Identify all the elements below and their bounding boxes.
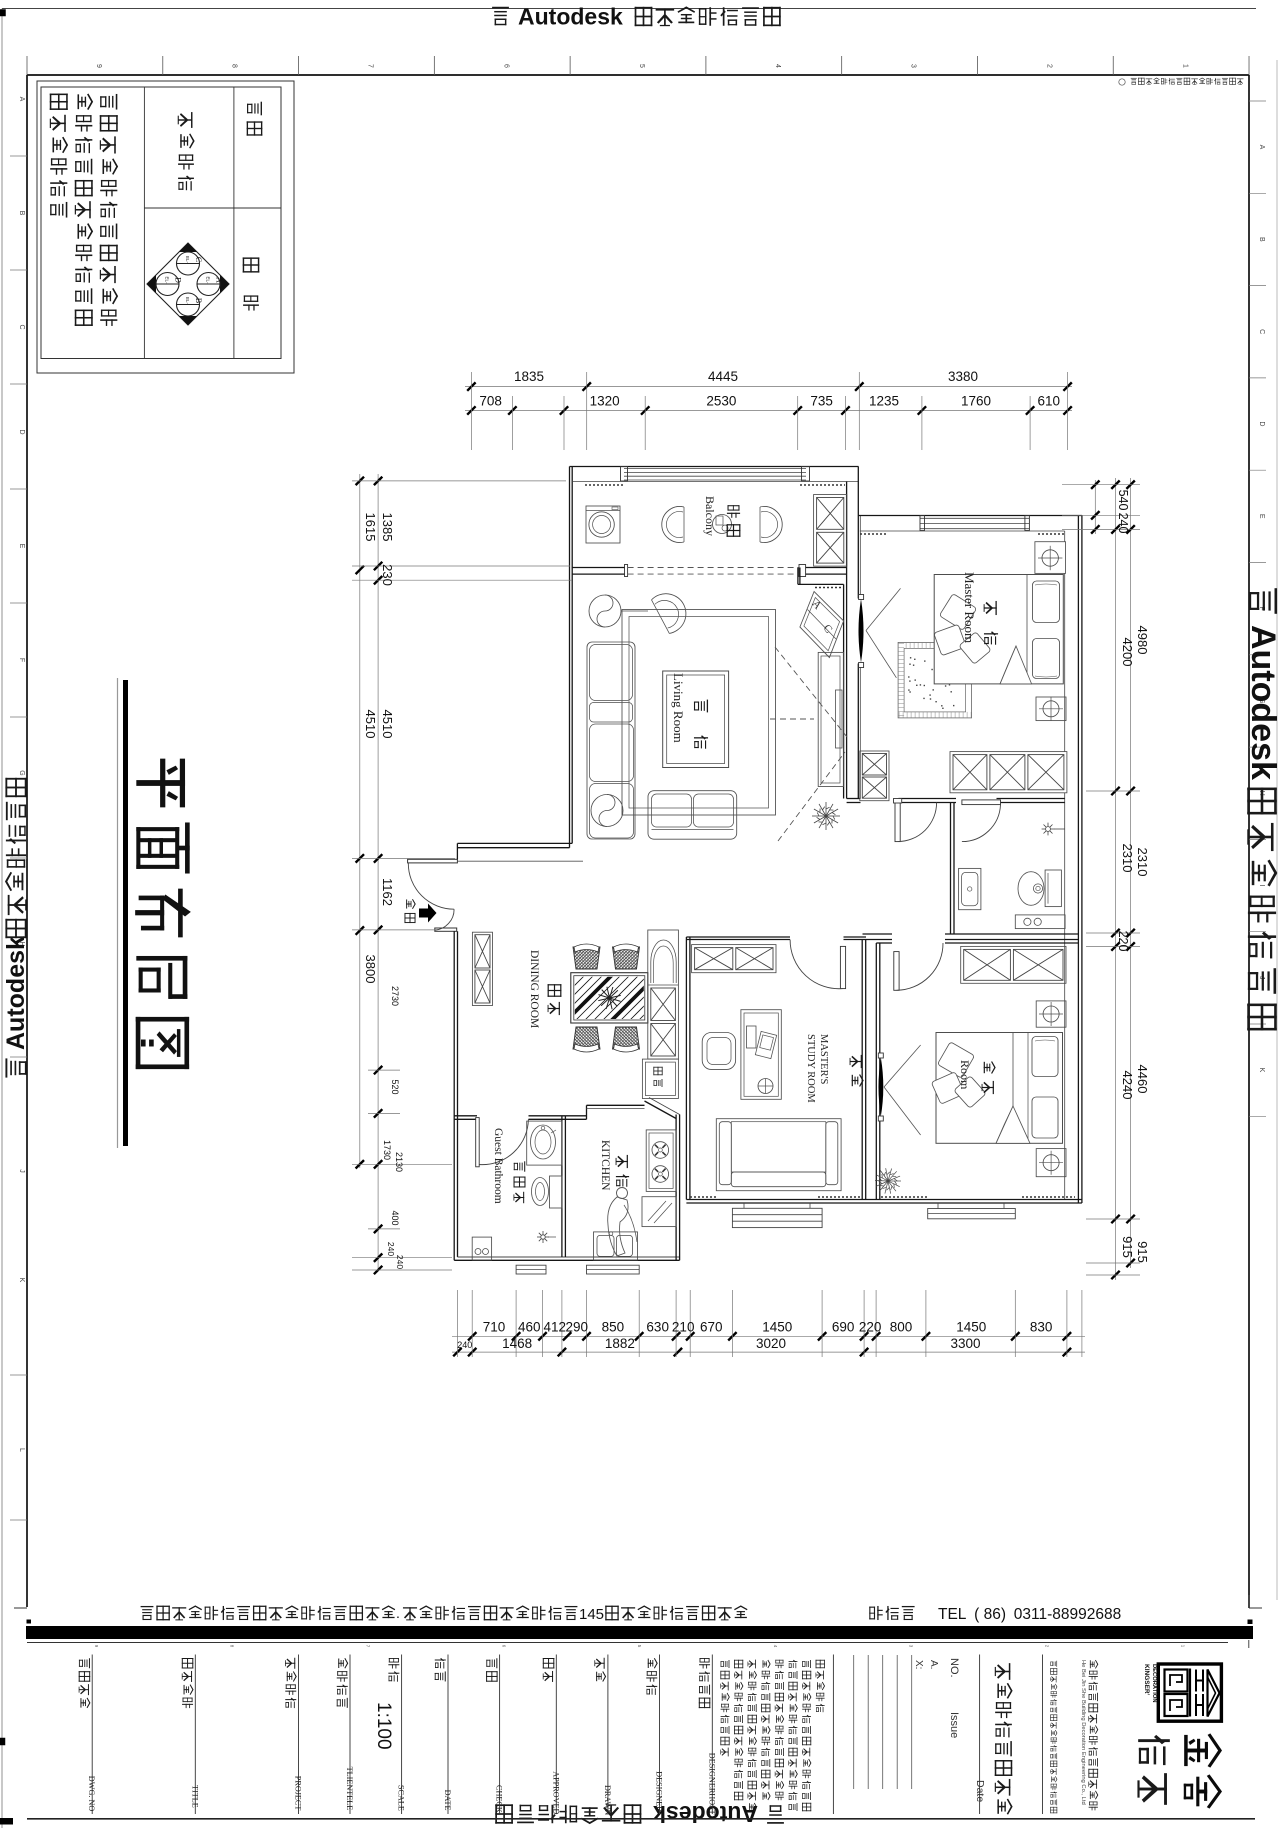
svg-text:Living Room: Living Room [671,673,686,743]
svg-text:915: 915 [1135,1241,1150,1263]
svg-text:C: C [18,324,25,329]
svg-text:1320: 1320 [590,394,620,409]
svg-text:MASTER'S: MASTER'S [818,1034,829,1084]
svg-text:K: K [18,1278,25,1283]
svg-text:4: 4 [774,64,781,68]
svg-text:Issue: Issue [948,1712,960,1738]
svg-text:DATE: DATE [443,1790,452,1811]
svg-text:4240: 4240 [1120,1071,1135,1100]
svg-text:Autodesk: Autodesk [518,4,623,30]
svg-text:400: 400 [390,1210,400,1225]
svg-text:8: 8 [231,64,238,68]
svg-text:PROJECT: PROJECT [294,1776,303,1811]
svg-text:240: 240 [457,1340,472,1350]
svg-text:Autodesk: Autodesk [2,936,30,1050]
svg-text:I: I [1258,884,1265,886]
svg-text:.: . [396,1605,400,1621]
svg-text:4460: 4460 [1135,1065,1150,1094]
svg-text:220: 220 [859,1320,882,1335]
svg-text:DRAWN: DRAWN [603,1785,612,1815]
svg-text:TLIENTELE: TLIENTELE [345,1767,354,1811]
svg-text:G: G [18,770,25,775]
svg-text:1760: 1760 [961,394,991,409]
svg-text:690: 690 [832,1320,855,1335]
svg-text:X:: X: [913,1660,924,1669]
svg-text:K: K [1258,1068,1265,1073]
svg-text:1162: 1162 [380,878,395,906]
svg-text:240: 240 [386,1242,396,1256]
svg-text:2310: 2310 [1135,848,1150,877]
svg-text:240: 240 [395,1255,405,1269]
svg-text:Balcony: Balcony [703,496,717,536]
svg-text:KITCHEN: KITCHEN [599,1140,611,1191]
svg-text:D: D [1258,421,1265,426]
svg-text:B: B [1258,237,1265,242]
svg-text:TEL ( 86) 0311-88992688: TEL ( 86) 0311-88992688 [938,1606,1121,1623]
svg-text:2130: 2130 [394,1152,404,1172]
svg-text:A.: A. [928,1660,939,1669]
svg-text:KINGSER’: KINGSER’ [1143,1664,1150,1696]
svg-text:2310: 2310 [1120,844,1135,873]
svg-text:C: C [1258,329,1265,334]
svg-text:610: 610 [1038,394,1061,409]
svg-text:800: 800 [890,1320,913,1335]
svg-text:C: C [194,257,203,262]
svg-text:EL-: EL- [185,297,190,305]
svg-text:710: 710 [483,1320,506,1335]
svg-text:412: 412 [544,1320,567,1335]
svg-text:9: 9 [95,64,102,68]
svg-text:4510: 4510 [380,710,395,739]
svg-text:Guest Bathroom: Guest Bathroom [492,1128,504,1204]
svg-text:2730: 2730 [390,986,400,1006]
svg-text:735: 735 [810,394,833,409]
svg-text:540: 540 [1116,490,1130,511]
svg-text:1:100: 1:100 [373,1702,394,1750]
svg-text:Date: Date [974,1780,986,1802]
svg-text:1385: 1385 [380,513,395,542]
svg-text:He Bei Jin She Building Decora: He Bei Jin She Building Decoration Engin… [1080,1660,1086,1805]
svg-text:1450: 1450 [762,1320,792,1335]
svg-text:7: 7 [367,64,374,68]
svg-text:EL-: EL- [165,276,170,284]
svg-text:EL-: EL- [185,256,190,264]
svg-text:2: 2 [1046,64,1053,68]
svg-text:1468: 1468 [502,1336,532,1351]
svg-text:210: 210 [672,1320,695,1335]
svg-text:850: 850 [602,1320,625,1335]
svg-text:Master Room: Master Room [962,572,977,643]
svg-text:EL-: EL- [206,276,211,284]
svg-text:J: J [1258,976,1265,980]
svg-text:Room: Room [958,1060,972,1090]
svg-text:3: 3 [910,64,917,68]
svg-text:F: F [18,658,25,662]
svg-text:4510: 4510 [363,710,378,739]
svg-text:230: 230 [380,564,395,586]
svg-text:708: 708 [479,394,502,409]
svg-text:3800: 3800 [363,955,378,984]
svg-text:D: D [174,277,183,283]
svg-text:1730: 1730 [382,1140,392,1160]
svg-text:4200: 4200 [1120,638,1135,667]
svg-text:1450: 1450 [956,1320,986,1335]
svg-text:A: A [18,97,25,102]
svg-text:L: L [18,1448,25,1452]
svg-text:E: E [1258,514,1265,519]
svg-text:3020: 3020 [756,1336,786,1351]
svg-text:APPROVED: APPROVED [551,1771,560,1814]
svg-text:520: 520 [390,1079,400,1094]
svg-text:DECORATION: DECORATION [1151,1664,1157,1703]
svg-text:Autodesk: Autodesk [653,1801,758,1827]
svg-text:J: J [18,1169,25,1173]
svg-text:DWG. NO: DWG. NO [87,1776,96,1812]
svg-text:1835: 1835 [514,369,544,384]
svg-text:630: 630 [646,1320,669,1335]
svg-text:240: 240 [1116,513,1130,534]
svg-text:4445: 4445 [708,369,738,384]
svg-text:DINING ROOM: DINING ROOM [528,950,540,1028]
svg-text:830: 830 [1030,1320,1053,1335]
svg-text:6: 6 [502,64,509,68]
svg-text:145: 145 [579,1606,604,1623]
svg-text:1235: 1235 [869,394,899,409]
svg-text:1615: 1615 [363,513,378,542]
svg-text:DESIGNERHOST: DESIGNERHOST [707,1753,716,1815]
svg-text:D: D [18,429,25,434]
svg-text:E: E [18,544,25,549]
svg-text:4980: 4980 [1135,626,1150,655]
svg-text:1: 1 [1181,64,1188,68]
svg-text:NO.: NO. [948,1658,960,1678]
svg-text:460: 460 [518,1320,541,1335]
svg-text:290: 290 [566,1320,589,1335]
svg-text:5: 5 [638,64,645,68]
svg-text:B: B [194,298,203,303]
svg-text:A: A [1258,145,1265,150]
svg-text:670: 670 [700,1320,723,1335]
svg-text:915: 915 [1120,1236,1135,1258]
svg-text:3380: 3380 [948,369,978,384]
svg-text:A: A [215,277,224,283]
svg-text:Autodesk: Autodesk [1244,625,1280,780]
svg-text:3300: 3300 [950,1336,980,1351]
svg-text:TITLE: TITLE [190,1785,199,1808]
svg-text:SCALE: SCALE [397,1785,406,1811]
svg-text:1882: 1882 [605,1336,635,1351]
svg-text:STUDY ROOM: STUDY ROOM [805,1034,816,1103]
svg-text:220: 220 [1116,931,1130,952]
svg-text:CHECK: CHECK [495,1785,504,1813]
svg-text:DESIGNER: DESIGNER [655,1771,664,1812]
svg-text:B: B [18,211,25,216]
svg-text:2530: 2530 [706,394,736,409]
